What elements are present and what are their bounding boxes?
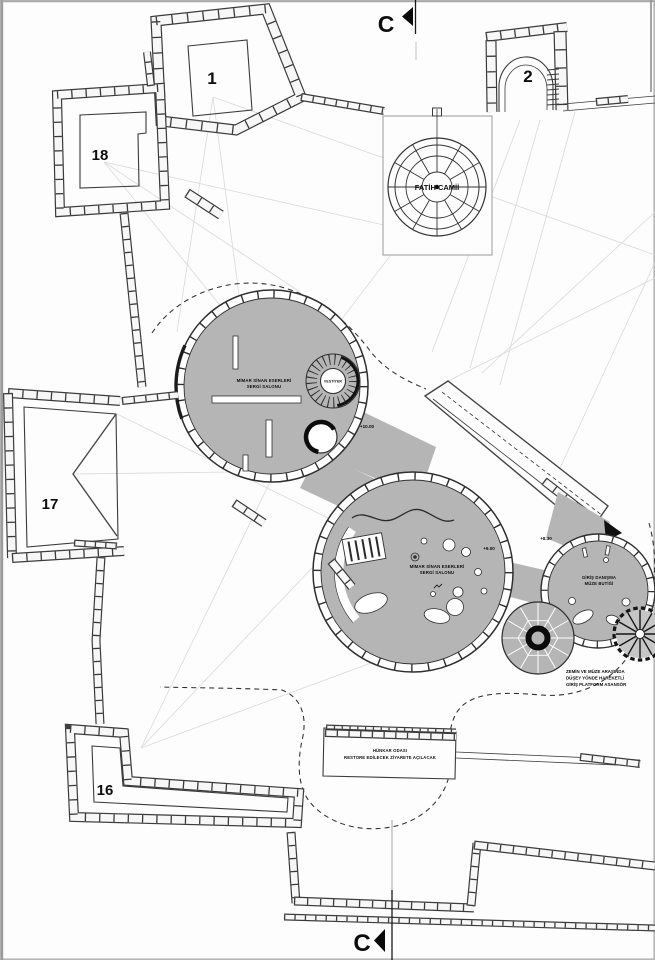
round-stair <box>305 421 337 453</box>
section-marker-top: C <box>378 0 416 60</box>
room-label-1: 1 <box>207 69 216 88</box>
floor-plan: MİMAR SİNAN ESERLERİ SERGİ SALONU VESTİY… <box>0 0 655 960</box>
elevator-note: ZEMİN VE MÜZE ARASINDA DÜŞEY YÖNDE HAREK… <box>566 669 627 687</box>
spiral-stair <box>614 608 655 660</box>
section-letter-top: C <box>378 11 395 37</box>
elevation-middle: +9.00 <box>483 546 495 551</box>
hunkar-building: HÜNKAR ODASI RESTORE EDİLECEK ZİYARETE A… <box>323 727 456 779</box>
section-marker-bottom: C <box>353 820 392 960</box>
entrance-label-2: MÜZE BUTİĞİ <box>585 581 614 586</box>
vestiyer-label: VESTİYER <box>324 380 342 384</box>
section-arrow-top <box>402 7 413 26</box>
elevation-upper: +10.00 <box>360 424 375 429</box>
hall-lower-label-1: MİMAR SİNAN ESERLERİ <box>410 564 465 569</box>
mosque-label: FATİH CAMİİ <box>415 183 459 192</box>
section-arrow-bottom <box>374 929 385 952</box>
exhibition-hall-lower: MİMAR SİNAN ESERLERİ SERGİ SALONU +9.00 <box>313 472 513 672</box>
courtyard-walls <box>284 752 655 928</box>
hall-upper-label-2: SERGİ SALONU <box>247 384 282 389</box>
room-label-17: 17 <box>42 496 59 513</box>
entrance-label-1: GİRİŞ DANIŞMA <box>582 575 616 580</box>
room-label-16: 16 <box>97 782 114 799</box>
elevator-note-1: ZEMİN VE MÜZE ARASINDA <box>566 669 625 674</box>
floor-plan-drawing: MİMAR SİNAN ESERLERİ SERGİ SALONU VESTİY… <box>0 0 655 960</box>
room-label-2: 2 <box>523 67 532 86</box>
hunkar-label-1: HÜNKAR ODASI <box>373 748 407 753</box>
fatih-camii-dome: FATİH CAMİİ <box>383 108 492 255</box>
elevator-note-3: GİRİŞ PLATFORM ASANSÖR <box>566 682 627 687</box>
elevator-note-2: DÜŞEY YÖNDE HAREKETLİ <box>566 676 624 681</box>
room-label-18: 18 <box>92 147 109 164</box>
hall-lower-label-2: SERGİ SALONU <box>420 570 455 575</box>
platform-elevator <box>502 602 574 674</box>
hall-upper-label-1: MİMAR SİNAN ESERLERİ <box>237 378 292 383</box>
hunkar-label-2: RESTORE EDİLECEK ZİYARETE AÇILACAK <box>344 755 436 760</box>
vestiyer-stair: VESTİYER <box>306 354 360 408</box>
section-letter-bottom: C <box>353 930 370 957</box>
elevation-lower: +8.30 <box>540 536 552 541</box>
